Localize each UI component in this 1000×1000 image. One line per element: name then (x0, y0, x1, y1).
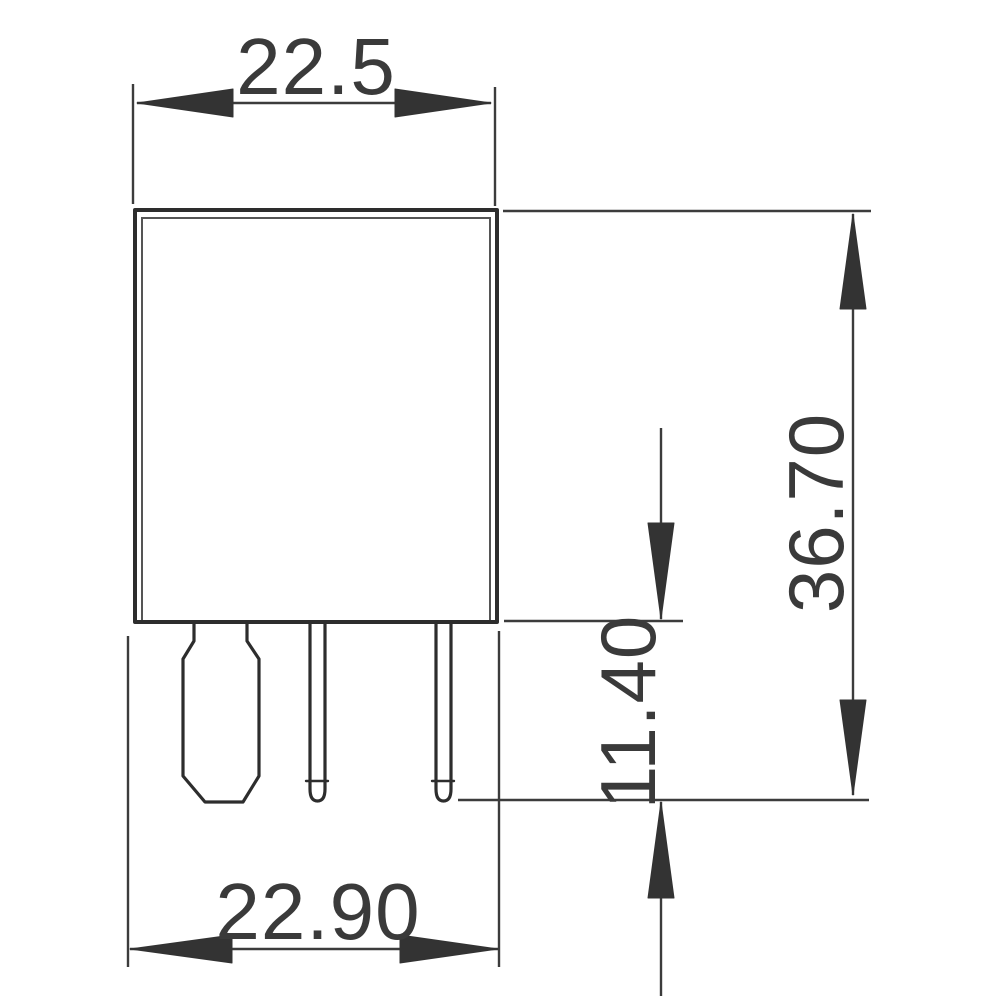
relay-terminals (183, 624, 454, 802)
dim-label-overall-height: 36.70 (772, 413, 860, 613)
pin-terminal-1 (310, 624, 325, 801)
relay-housing-outline (135, 210, 497, 622)
technical-drawing-canvas: 22.5 22.90 36.70 11.40 (0, 0, 1000, 1000)
relay-body (135, 210, 497, 622)
arrow-up-icon (648, 802, 674, 898)
arrow-up-icon (840, 214, 866, 309)
arrow-down-icon (840, 700, 866, 795)
arrow-down-icon (648, 523, 674, 619)
arrow-left-icon (137, 89, 233, 117)
dimension-top-width: 22.5 (133, 22, 495, 206)
dim-label-pin-length: 11.40 (584, 615, 672, 809)
dimension-pin-length: 11.40 (504, 428, 683, 996)
pin-terminal-2 (436, 624, 451, 801)
dim-label-top-width: 22.5 (236, 22, 396, 111)
arrow-right-icon (395, 89, 491, 117)
blade-terminal (183, 624, 259, 802)
dim-label-base-width: 22.90 (215, 867, 420, 956)
relay-housing-inner-seam (142, 218, 490, 620)
relay-dimension-drawing: 22.5 22.90 36.70 11.40 (0, 0, 1000, 1000)
